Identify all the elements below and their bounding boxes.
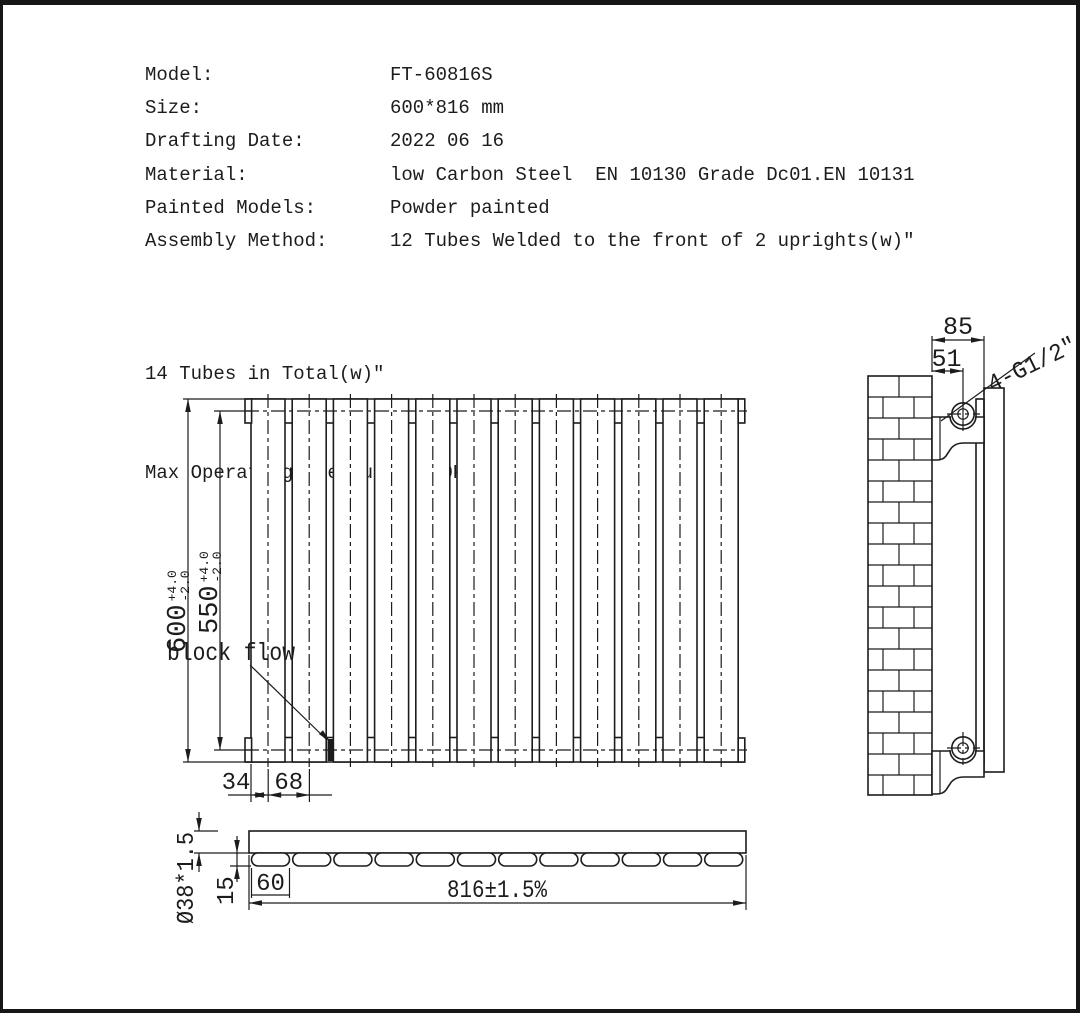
tube-section: [664, 853, 702, 866]
dim-38-label: Ø38*1.5: [174, 832, 201, 924]
dimension-arrowhead: [733, 900, 746, 906]
tube-section: [581, 853, 619, 866]
tube-section: [499, 853, 537, 866]
header-tube-top-view: [249, 831, 746, 853]
tube-section: [334, 853, 372, 866]
dim-85-label: 85: [943, 313, 973, 342]
dim-816-label: 816±1.5%: [447, 876, 548, 905]
dim-60-label: 60: [256, 871, 285, 898]
dimension-arrowhead: [971, 337, 984, 343]
block-flow-marker: [328, 739, 335, 761]
dimension-arrowhead: [217, 737, 223, 750]
tube-section: [416, 853, 454, 866]
side-view-drawing: 85 51 4-G1/2": [868, 313, 1080, 795]
dimension-arrowhead: [217, 411, 223, 424]
dimension-arrowhead: [234, 840, 240, 853]
dim-550-label: 550+4.0-2.0: [196, 551, 226, 634]
tube-section: [540, 853, 578, 866]
dimension-arrowhead: [185, 399, 191, 412]
drawing-sheet: Model:FT-60816SSize:600*816 mmDrafting D…: [0, 0, 1080, 1013]
dim-34-label: 34: [222, 770, 251, 797]
dim-600-label: 600+4.0-2.0: [164, 570, 194, 653]
tube-section: [622, 853, 660, 866]
front-view-tubes: [245, 394, 747, 767]
dimension-arrowhead: [234, 866, 240, 879]
panel-profile: [976, 399, 984, 762]
tube-section: [375, 853, 413, 866]
dim-15-label: 15: [214, 876, 241, 905]
tube-section: [458, 853, 496, 866]
dimension-arrowhead: [249, 900, 262, 906]
dim-51-label: 51: [931, 345, 961, 374]
connection-label: 4-G1/2": [984, 333, 1080, 399]
tube-section: [252, 853, 290, 866]
dimension-arrowhead: [932, 337, 945, 343]
upright-profile: [984, 388, 1004, 772]
tube-section: [293, 853, 331, 866]
technical-drawing: block flow 600+4.0-2.0 550+4.0-2.0 34 68: [0, 0, 1080, 1013]
tube-section: [705, 853, 743, 866]
top-view-tube-sections: [252, 853, 743, 866]
dimension-arrowhead: [185, 749, 191, 762]
front-view-drawing: block flow 600+4.0-2.0 550+4.0-2.0 34 68: [164, 394, 747, 802]
dimension-arrowhead: [196, 818, 202, 831]
top-view-drawing: Ø38*1.5 15 60 816±1.5%: [174, 812, 746, 924]
